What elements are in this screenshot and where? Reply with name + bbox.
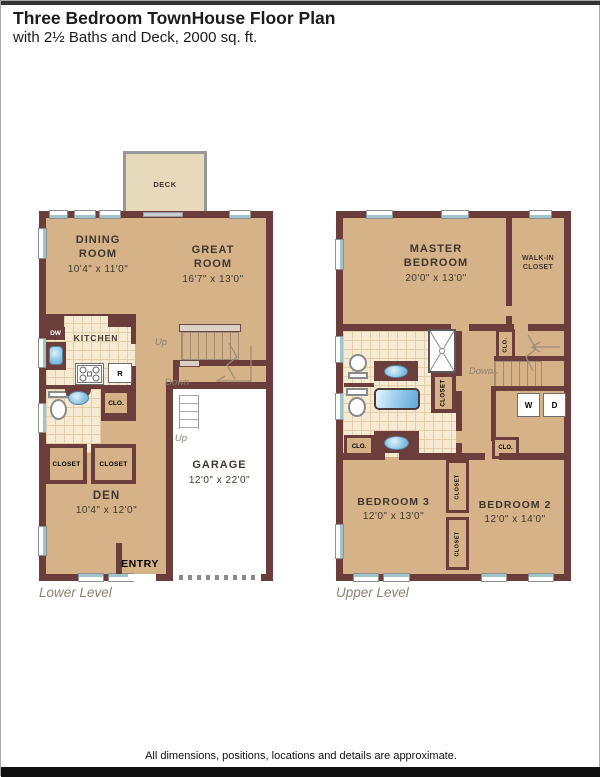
stair-landing xyxy=(179,360,200,367)
dryer-label: D xyxy=(552,401,558,410)
powder-sink-icon xyxy=(68,391,89,405)
closet-b-label: CLOSET xyxy=(99,461,127,468)
wall xyxy=(131,314,136,344)
kitchen-label: KITCHEN xyxy=(61,333,131,343)
bath-sink-icon xyxy=(384,365,408,378)
master-name: MASTER BEDROOM xyxy=(366,243,506,271)
dining-room-dims: 10'4" x 11'0" xyxy=(49,264,147,275)
clo-right-label: CLO. xyxy=(498,445,512,451)
clo-left-label: CLO. xyxy=(352,444,366,450)
window xyxy=(74,210,96,219)
top-border-bar xyxy=(1,1,600,5)
window xyxy=(229,210,251,219)
bed3-name: BEDROOM 3 xyxy=(346,496,441,509)
wall xyxy=(491,386,564,391)
refrigerator-box: R xyxy=(108,363,132,383)
bedroom-closet-1: CLOSET xyxy=(446,460,469,513)
wall xyxy=(491,391,496,441)
entry-door-opening xyxy=(128,574,156,581)
floor-plan-page: Three Bedroom TownHouse Floor Plan with … xyxy=(0,0,600,776)
window xyxy=(49,210,68,219)
wall xyxy=(344,383,374,387)
bedroom-closet-1-label: CLOSET xyxy=(455,474,461,499)
toilet-icon xyxy=(346,388,368,396)
window xyxy=(383,573,410,582)
bed2-dims: 12'0" x 14'0" xyxy=(469,514,561,525)
washer-box: W xyxy=(517,393,540,417)
level-label-upper: Upper Level xyxy=(336,585,456,600)
bath-closet-label: CLOSET xyxy=(441,379,447,406)
clo-label: CLO. xyxy=(108,400,124,407)
wall xyxy=(46,314,64,327)
down-label: Down xyxy=(157,377,197,388)
dishwasher-label: DW xyxy=(50,330,61,337)
level-label-lower: Lower Level xyxy=(39,585,159,600)
window xyxy=(38,228,47,259)
range-icon xyxy=(75,363,104,385)
page-title: Three Bedroom TownHouse Floor Plan xyxy=(13,8,573,29)
bathtub-icon xyxy=(374,388,420,410)
closet-a-label: CLOSET xyxy=(52,461,80,468)
window xyxy=(441,210,469,219)
toilet-icon xyxy=(50,399,67,420)
toilet-icon xyxy=(349,354,367,372)
room-label-dining: DINING ROOM 10'4" x 11'0" xyxy=(49,234,147,275)
wall xyxy=(499,453,564,460)
garage-dims: 12'0" x 22'0" xyxy=(173,475,266,486)
window xyxy=(366,210,393,219)
entry-label: ENTRY xyxy=(117,558,163,570)
wall xyxy=(456,331,462,376)
wall xyxy=(131,389,136,421)
wall xyxy=(166,382,173,581)
toilet-icon xyxy=(348,397,366,417)
wall xyxy=(343,453,385,460)
floor-plan-upper: MASTER BEDROOM 20'0" x 13'0" WALK-IN CLO… xyxy=(336,211,571,581)
window xyxy=(335,239,344,270)
room-label-great: GREAT ROOM 16'7" x 13'0" xyxy=(167,244,259,285)
window xyxy=(528,573,554,582)
page-subtitle: with 2½ Baths and Deck, 2000 sq. ft. xyxy=(13,29,573,46)
refrigerator-label: R xyxy=(117,369,122,378)
window xyxy=(481,573,507,582)
range-burners-icon xyxy=(77,365,102,383)
window xyxy=(529,210,552,219)
footer-disclaimer: All dimensions, positions, locations and… xyxy=(1,750,600,762)
bed2-name: BEDROOM 2 xyxy=(469,499,561,512)
wall xyxy=(399,453,485,460)
bath2-sink-icon xyxy=(384,436,409,450)
shower-icon xyxy=(428,329,456,373)
up-label: Up xyxy=(147,337,175,348)
stair-direction-arrow xyxy=(486,329,564,391)
wall xyxy=(456,391,462,431)
closet-clo: CLO. xyxy=(101,389,131,417)
room-label-master: MASTER BEDROOM 20'0" x 13'0" xyxy=(366,243,506,284)
deck-label: DECK xyxy=(153,180,176,189)
room-label-bed3: BEDROOM 3 12'0" x 13'0" xyxy=(346,496,441,522)
room-label-bed2: BEDROOM 2 12'0" x 14'0" xyxy=(469,499,561,525)
wall xyxy=(64,314,108,316)
bath-closet: CLOSET xyxy=(431,373,456,413)
garage-door xyxy=(179,575,255,580)
wall xyxy=(506,218,512,306)
window xyxy=(99,210,121,219)
dining-room-name: DINING ROOM xyxy=(49,234,147,262)
walkin-closet-label: WALK-IN CLOSET xyxy=(514,255,562,273)
kitchen-sink-icon xyxy=(49,346,63,365)
shower-glass-icon xyxy=(430,331,454,371)
closet-a: CLOSET xyxy=(46,444,87,484)
window xyxy=(335,524,344,559)
up-entry-label: Up xyxy=(167,433,195,444)
sliding-door xyxy=(143,212,183,217)
window xyxy=(78,573,104,582)
master-dims: 20'0" x 13'0" xyxy=(366,273,506,284)
stairs-entry xyxy=(179,395,199,429)
bedroom-closet-2-label: CLOSET xyxy=(455,531,461,556)
closet-b: CLOSET xyxy=(91,444,136,484)
floor-plan-lower: DINING ROOM 10'4" x 11'0" GREAT ROOM 16'… xyxy=(39,211,273,581)
dryer-box: D xyxy=(543,393,566,417)
washer-label: W xyxy=(525,401,533,410)
garage-name: GARAGE xyxy=(173,459,266,473)
room-label-garage: GARAGE 12'0" x 22'0" xyxy=(173,459,266,486)
den-name: DEN xyxy=(49,489,164,503)
room-label-den: DEN 10'4" x 12'0" xyxy=(49,489,164,516)
great-room-name: GREAT ROOM xyxy=(167,244,259,272)
deck-area: DECK xyxy=(123,151,207,214)
toilet-icon xyxy=(348,372,368,379)
window xyxy=(38,526,47,556)
window xyxy=(353,573,379,582)
bed3-dims: 12'0" x 13'0" xyxy=(346,511,441,522)
great-room-dims: 16'7" x 13'0" xyxy=(167,274,259,285)
bedroom-closet-2: CLOSET xyxy=(446,517,469,570)
den-dims: 10'4" x 12'0" xyxy=(49,505,164,516)
